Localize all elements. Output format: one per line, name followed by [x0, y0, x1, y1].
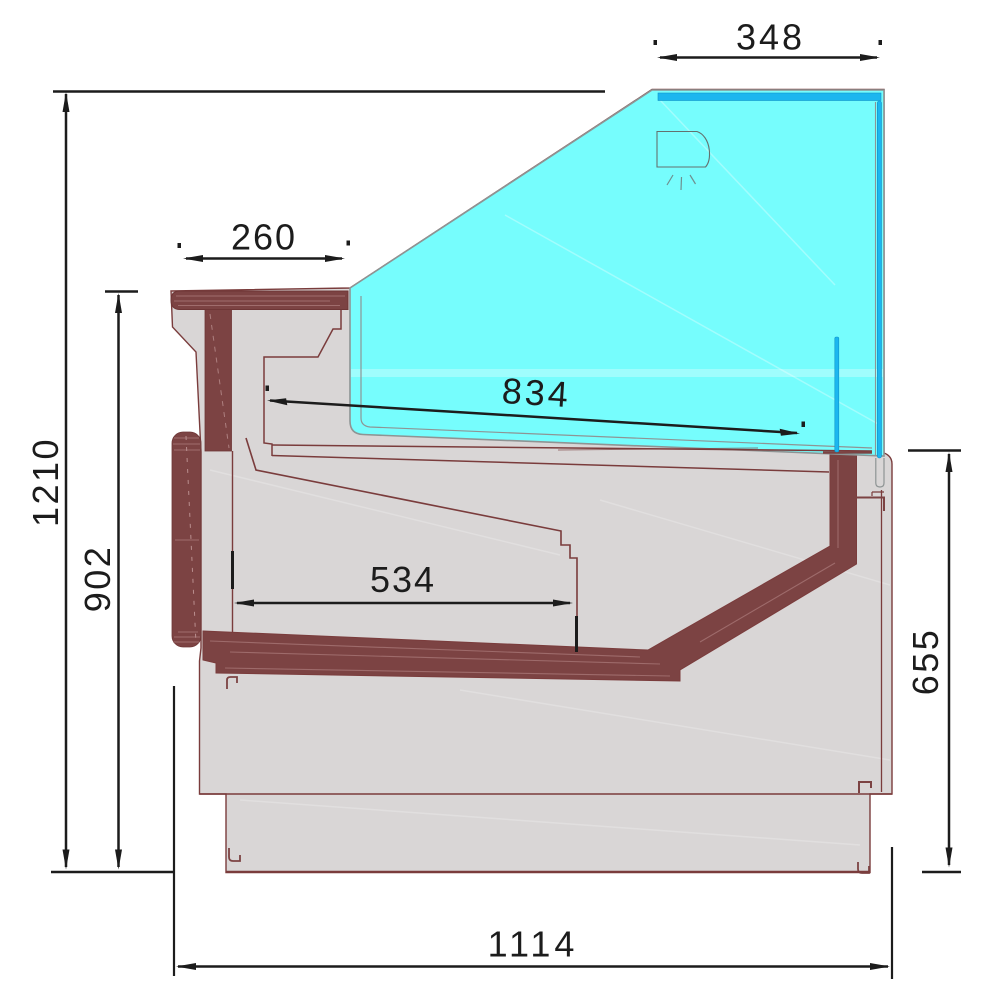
svg-text:902: 902 — [77, 545, 118, 613]
svg-text:834: 834 — [501, 370, 573, 415]
svg-text:1210: 1210 — [25, 437, 66, 527]
svg-text:534: 534 — [370, 559, 436, 600]
svg-text:1114: 1114 — [488, 924, 579, 965]
svg-text:655: 655 — [905, 628, 946, 696]
svg-text:348: 348 — [736, 17, 805, 58]
svg-text:260: 260 — [231, 217, 297, 258]
